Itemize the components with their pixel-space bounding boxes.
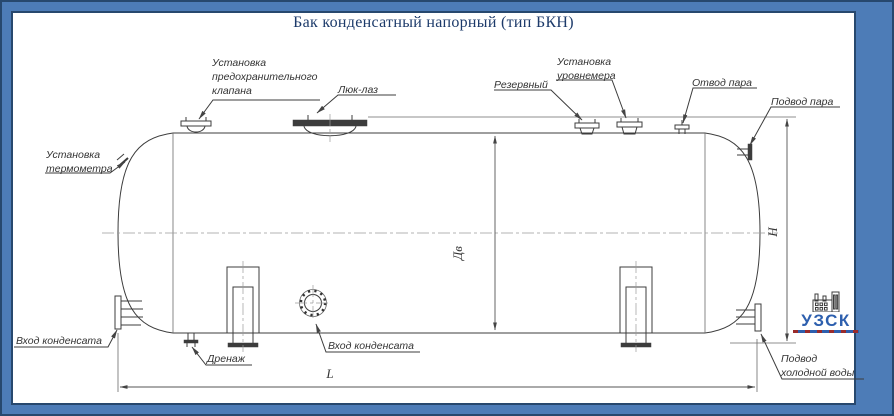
condensate-inlet-front-flange (295, 285, 331, 321)
tank-line-drawing (0, 0, 894, 416)
condensate-inlet-left-nozzle (115, 296, 143, 329)
logo-tagline (793, 330, 859, 333)
label-safety-valve: Установка предохранительного клапана (212, 56, 318, 98)
manhole-nozzle (293, 114, 367, 142)
label-condensate-inlet-front: Вход конденсата (328, 339, 414, 353)
dimension-label-diameter: Дв (450, 233, 466, 273)
steam-outlet-nozzle (675, 120, 689, 134)
label-reserve: Резервный (494, 78, 548, 92)
saddle-support-left (227, 261, 259, 352)
dimension-label-height: H (765, 212, 781, 252)
steam-inlet-nozzle (737, 144, 752, 160)
dimension-height (368, 117, 796, 343)
safety-valve-nozzle (181, 117, 211, 132)
label-thermometer: Установка термометра (46, 148, 113, 176)
saddle-support-right (620, 261, 652, 352)
label-cold-water: Подвод холодной воды (781, 352, 854, 380)
label-manhole: Люк-лаз (338, 83, 378, 97)
framed-drawing-sheet: Бак конденсатный напорный (тип БКН) (0, 0, 894, 416)
factory-icon (811, 290, 841, 312)
drain-nozzle (184, 333, 198, 347)
level-gauge-nozzle (617, 118, 642, 134)
label-steam-inlet: Подвод пара (771, 95, 833, 109)
label-steam-outlet: Отвод пара (692, 76, 752, 90)
dimension-label-length: L (320, 366, 340, 382)
uzsk-logo: УЗСК (789, 290, 863, 333)
reserve-nozzle (575, 119, 599, 134)
logo-text: УЗСК (789, 312, 863, 329)
label-drain: Дренаж (207, 352, 245, 366)
label-level-gauge: Установка уровнемера (557, 55, 616, 83)
cold-water-nozzle (736, 304, 761, 331)
label-condensate-inlet-left: Вход конденсата (16, 334, 102, 348)
tank-shell (102, 133, 778, 333)
leader-lines (14, 80, 864, 379)
